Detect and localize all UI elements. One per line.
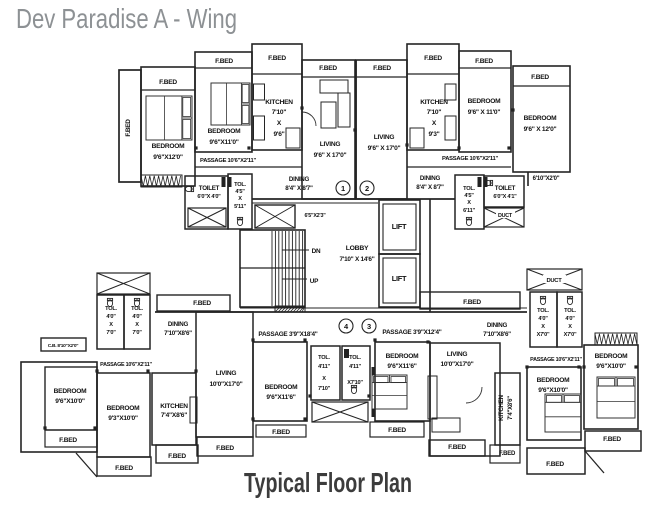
svg-text:9'6"X12'0": 9'6"X12'0"	[153, 154, 183, 161]
svg-text:F.BED: F.BED	[193, 300, 211, 307]
svg-text:X: X	[568, 324, 572, 330]
svg-text:7'4"X8'6": 7'4"X8'6"	[508, 396, 514, 420]
svg-text:BEDROOM: BEDROOM	[386, 353, 419, 360]
svg-text:9'6"X11'0": 9'6"X11'0"	[209, 139, 238, 146]
svg-text:LIVING: LIVING	[320, 141, 341, 148]
svg-text:9'6"X10'0": 9'6"X10'0"	[596, 363, 626, 370]
svg-text:6'10"X2'0": 6'10"X2'0"	[533, 176, 560, 182]
svg-text:4'5": 4'5"	[235, 189, 245, 195]
svg-text:LIFT: LIFT	[392, 274, 407, 283]
svg-text:BEDROOM: BEDROOM	[265, 384, 298, 391]
svg-text:F.BED: F.BED	[546, 461, 564, 468]
svg-text:F.BED: F.BED	[216, 445, 234, 452]
svg-text:8'4" X 8'7": 8'4" X 8'7"	[285, 185, 313, 192]
svg-text:C.B. 8'10"X2'0": C.B. 8'10"X2'0"	[48, 343, 79, 349]
svg-text:F.BED: F.BED	[373, 65, 391, 72]
svg-text:TOILET: TOILET	[495, 185, 516, 192]
svg-text:F.BED: F.BED	[272, 429, 290, 436]
svg-text:F.BED: F.BED	[159, 79, 177, 86]
svg-text:9'6" X 17'0": 9'6" X 17'0"	[314, 152, 347, 159]
svg-text:X7'0": X7'0"	[537, 332, 550, 338]
svg-text:F.BED: F.BED	[168, 453, 186, 460]
svg-text:UP: UP	[310, 278, 319, 285]
svg-text:X: X	[467, 200, 471, 206]
svg-text:KITCHEN: KITCHEN	[498, 394, 505, 421]
svg-text:10'0"X17'0": 10'0"X17'0"	[440, 361, 473, 368]
svg-text:DUCT: DUCT	[546, 278, 562, 284]
svg-text:TOL.: TOL.	[564, 308, 576, 314]
svg-text:4'0": 4'0"	[106, 314, 116, 320]
svg-text:BEDROOM: BEDROOM	[107, 405, 140, 412]
svg-text:X: X	[322, 376, 326, 382]
svg-text:X: X	[135, 322, 139, 328]
svg-text:1: 1	[341, 184, 345, 193]
svg-text:TOILET: TOILET	[199, 185, 220, 192]
svg-text:4'0": 4'0"	[538, 316, 548, 322]
svg-text:F.BED: F.BED	[268, 55, 286, 62]
svg-text:4'0": 4'0"	[565, 316, 575, 322]
svg-text:LIVING: LIVING	[216, 370, 237, 377]
svg-text:F.BED: F.BED	[388, 427, 406, 434]
svg-text:TOL.: TOL.	[234, 182, 246, 188]
svg-text:4'11": 4'11"	[349, 364, 361, 370]
svg-text:7'10": 7'10"	[318, 386, 331, 392]
svg-text:4'5": 4'5"	[464, 193, 474, 199]
svg-text:F.BED: F.BED	[475, 58, 493, 65]
svg-text:9'3": 9'3"	[428, 131, 439, 138]
svg-text:4'0": 4'0"	[132, 314, 142, 320]
svg-text:DUCT: DUCT	[498, 213, 513, 219]
svg-text:PASSAGE 10'6"X2'11": PASSAGE 10'6"X2'11"	[200, 158, 256, 164]
svg-text:7'4"X8'6": 7'4"X8'6"	[161, 412, 187, 419]
svg-text:PASSAGE 3'9"X18'4": PASSAGE 3'9"X18'4"	[258, 331, 317, 338]
svg-text:F.BED: F.BED	[215, 58, 233, 65]
svg-text:7'0": 7'0"	[132, 330, 142, 336]
svg-text:DINING: DINING	[420, 175, 441, 182]
svg-text:X: X	[109, 322, 113, 328]
svg-text:PASSAGE 10'6"X2'11": PASSAGE 10'6"X2'11"	[100, 362, 152, 368]
svg-text:DINING: DINING	[289, 176, 310, 183]
svg-text:X7'0": X7'0"	[564, 332, 577, 338]
svg-text:PASSAGE 10'6"X2'11": PASSAGE 10'6"X2'11"	[442, 156, 498, 162]
svg-text:TOL.: TOL.	[463, 186, 475, 192]
svg-text:DINING: DINING	[487, 322, 508, 329]
svg-text:F.BED: F.BED	[463, 299, 481, 306]
svg-text:F.BED: F.BED	[115, 465, 133, 472]
svg-text:9'6"X10'0": 9'6"X10'0"	[538, 387, 568, 394]
svg-text:F.BED: F.BED	[448, 444, 466, 451]
svg-text:3: 3	[367, 322, 371, 331]
svg-text:BEDROOM: BEDROOM	[595, 353, 628, 360]
svg-text:7'10" X 14'6": 7'10" X 14'6"	[340, 256, 375, 263]
svg-text:X: X	[238, 196, 242, 202]
svg-text:6'0"X 4'0": 6'0"X 4'0"	[197, 194, 221, 200]
svg-text:9'6"X11'6": 9'6"X11'6"	[387, 363, 416, 370]
svg-text:LIVING: LIVING	[374, 134, 395, 141]
svg-text:2: 2	[365, 184, 369, 193]
svg-text:9'6"X11'6": 9'6"X11'6"	[266, 394, 295, 401]
svg-text:PASSAGE 3'9"X12'4": PASSAGE 3'9"X12'4"	[382, 329, 441, 336]
svg-text:BEDROOM: BEDROOM	[468, 98, 501, 105]
svg-text:DN: DN	[312, 248, 321, 255]
svg-text:6'5"X2'3": 6'5"X2'3"	[304, 213, 326, 219]
svg-text:9'6" X 17'0": 9'6" X 17'0"	[368, 145, 401, 152]
svg-text:Typical Floor Plan: Typical Floor Plan	[244, 467, 412, 498]
svg-text:TOL.: TOL.	[318, 355, 330, 361]
svg-text:LIVING: LIVING	[447, 351, 468, 358]
svg-text:DINING: DINING	[168, 321, 189, 328]
svg-text:9'6"X10'0": 9'6"X10'0"	[55, 398, 85, 405]
svg-text:PASSAGE 10'6"X2'11": PASSAGE 10'6"X2'11"	[530, 357, 582, 363]
svg-text:7'10": 7'10"	[272, 109, 287, 116]
svg-text:BEDROOM: BEDROOM	[537, 377, 570, 384]
svg-text:F.BED: F.BED	[125, 119, 132, 137]
svg-text:4'11": 4'11"	[318, 364, 330, 370]
svg-text:BEDROOM: BEDROOM	[208, 128, 241, 135]
svg-text:LOBBY: LOBBY	[346, 245, 369, 252]
svg-text:X: X	[541, 324, 545, 330]
svg-text:8'4" X 8'7": 8'4" X 8'7"	[416, 184, 444, 191]
svg-text:BEDROOM: BEDROOM	[54, 388, 87, 395]
svg-text:F.BED: F.BED	[59, 437, 77, 444]
svg-text:7'10"X8'6": 7'10"X8'6"	[483, 331, 511, 338]
svg-text:F.BED: F.BED	[531, 74, 549, 81]
svg-text:KITCHEN: KITCHEN	[160, 403, 188, 410]
svg-text:Dev Paradise A - Wing: Dev Paradise A - Wing	[16, 3, 237, 34]
svg-text:TOL.: TOL.	[537, 308, 549, 314]
svg-text:BEDROOM: BEDROOM	[524, 115, 557, 122]
svg-text:TOL.: TOL.	[349, 355, 361, 361]
svg-text:9'6": 9'6"	[273, 131, 284, 138]
svg-text:TOL.: TOL.	[105, 306, 117, 312]
svg-text:5'11": 5'11"	[234, 204, 246, 210]
svg-text:7'10"X8'6": 7'10"X8'6"	[164, 330, 192, 337]
svg-text:10'0"X17'0": 10'0"X17'0"	[209, 381, 242, 388]
svg-text:9'3"X10'0": 9'3"X10'0"	[108, 415, 138, 422]
svg-text:KITCHEN: KITCHEN	[420, 99, 448, 106]
svg-text:7'0": 7'0"	[106, 330, 116, 336]
svg-text:9'6" X 11'0": 9'6" X 11'0"	[468, 109, 501, 116]
svg-text:LIFT: LIFT	[392, 222, 407, 231]
svg-text:7'10": 7'10"	[427, 109, 442, 116]
svg-text:BEDROOM: BEDROOM	[152, 143, 185, 150]
svg-text:6'0"X 4'1": 6'0"X 4'1"	[493, 194, 517, 200]
svg-text:F.BED: F.BED	[424, 55, 442, 62]
svg-text:F.BED: F.BED	[499, 451, 516, 457]
svg-text:KITCHEN: KITCHEN	[265, 99, 293, 106]
svg-text:F.BED: F.BED	[319, 65, 337, 72]
svg-text:6'11": 6'11"	[463, 208, 475, 214]
svg-text:F.BED: F.BED	[603, 436, 621, 443]
svg-text:9'6" X 12'0": 9'6" X 12'0"	[524, 126, 557, 133]
